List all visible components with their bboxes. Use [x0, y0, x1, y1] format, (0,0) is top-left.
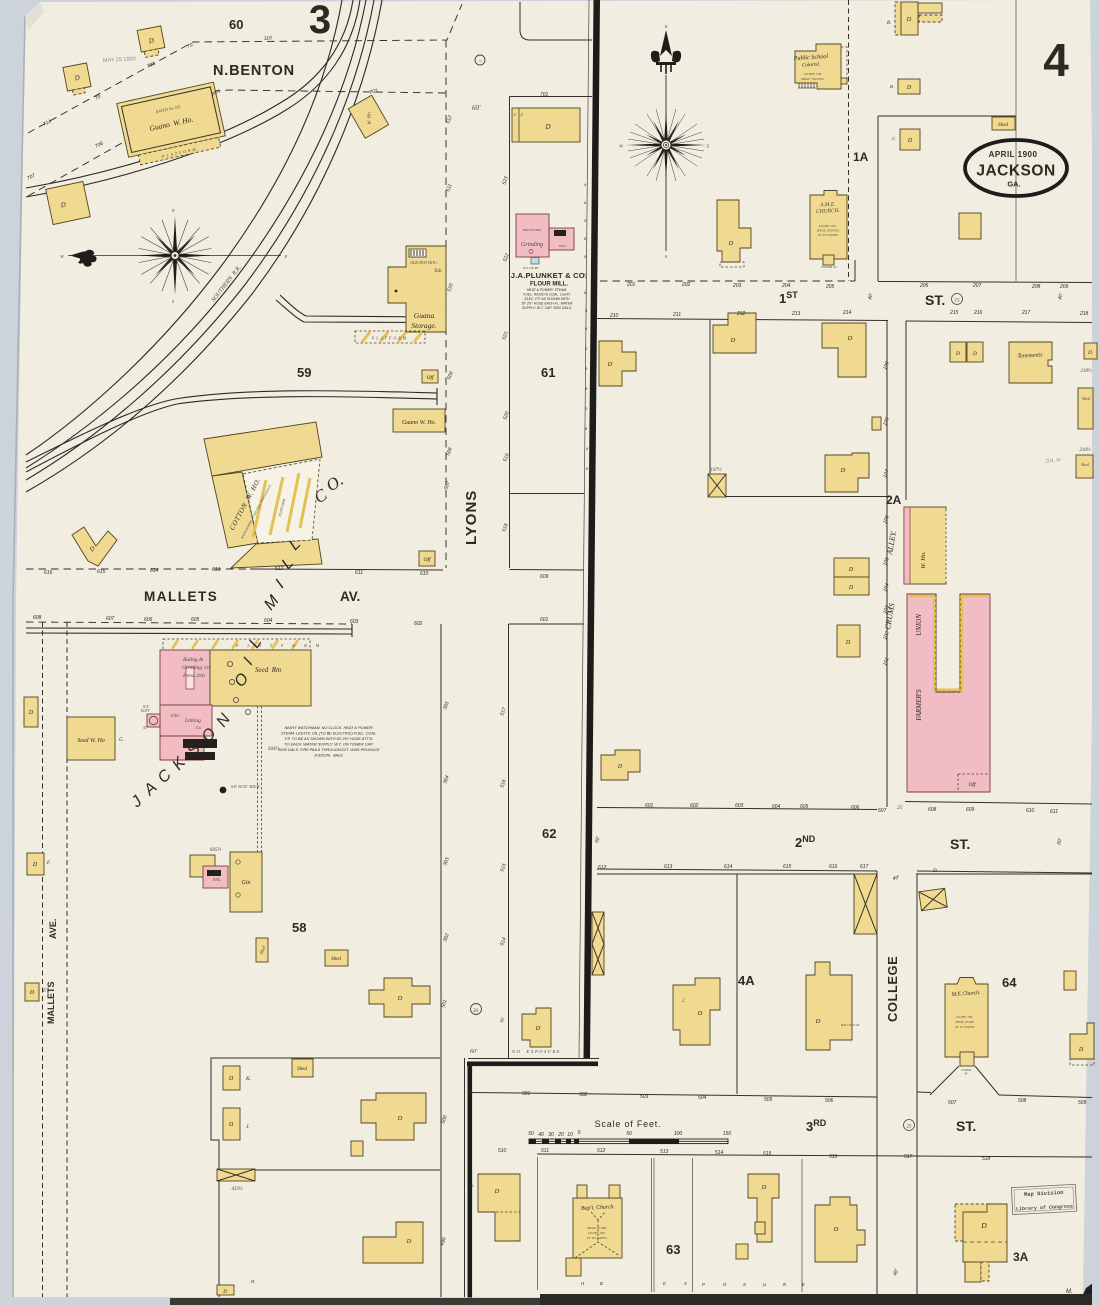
svg-text:210½: 210½: [1079, 448, 1091, 453]
svg-text:ELEV.: ELEV.: [140, 709, 150, 713]
svg-text:E: E: [802, 1282, 805, 1287]
svg-text:D: D: [847, 335, 853, 342]
svg-text:H.: H.: [250, 1279, 255, 1284]
svg-text:D: D: [29, 990, 35, 996]
svg-text:ST.: ST.: [956, 1118, 976, 1134]
svg-text:D: D: [955, 351, 960, 357]
svg-text:R: R: [783, 1282, 786, 1287]
svg-text:611: 611: [355, 570, 363, 576]
svg-text:PLATFORM: PLATFORM: [371, 336, 408, 341]
svg-text:N.BENTON: N.BENTON: [213, 63, 295, 79]
svg-text:HEAT: FURN.: HEAT: FURN.: [954, 1020, 974, 1024]
svg-text:BALCONY 2K: BALCONY 2K: [841, 1023, 860, 1027]
svg-text:S.P. 50'25" HIGH.: S.P. 50'25" HIGH.: [231, 784, 261, 789]
svg-text:R.: R.: [886, 21, 891, 26]
svg-text:D: D: [406, 1238, 412, 1245]
svg-text:Guano W. Ho.: Guano W. Ho.: [402, 420, 436, 426]
svg-text:Shed: Shed: [297, 1067, 307, 1072]
svg-text:516: 516: [829, 1154, 838, 1160]
svg-text:609: 609: [540, 574, 549, 580]
svg-text:605: 605: [800, 804, 809, 810]
svg-text:ENG.: ENG.: [212, 878, 221, 882]
svg-text:16' TO EAVES.: 16' TO EAVES.: [587, 1236, 608, 1240]
svg-text:Co: Co: [196, 725, 202, 730]
svg-text:60': 60': [472, 104, 481, 112]
svg-text:HEAT: STOVES: HEAT: STOVES: [816, 229, 839, 233]
svg-text:606: 606: [851, 805, 860, 811]
svg-text:608: 608: [928, 807, 937, 813]
svg-text:D: D: [848, 585, 854, 591]
svg-text:203: 203: [732, 283, 742, 289]
svg-text:D: D: [980, 1221, 987, 1230]
svg-text:10: 10: [567, 1132, 573, 1138]
svg-text:202: 202: [681, 282, 691, 288]
svg-text:Guana: Guana: [414, 311, 435, 320]
svg-text:62: 62: [542, 826, 556, 841]
svg-text:D: D: [815, 1018, 821, 1025]
svg-text:512: 512: [597, 1148, 606, 1154]
svg-text:616: 616: [829, 864, 838, 870]
svg-text:1A: 1A: [853, 150, 869, 164]
svg-text:D: D: [845, 640, 851, 646]
svg-text:D: D: [617, 764, 623, 770]
svg-text:43': 43': [143, 726, 148, 730]
svg-text:FLOUR MILL.: FLOUR MILL.: [530, 282, 568, 288]
svg-text:100: 100: [674, 1131, 683, 1137]
svg-text:K.: K.: [245, 1076, 251, 1082]
svg-text:50: 50: [528, 1131, 534, 1137]
svg-text:605½: 605½: [210, 848, 222, 853]
svg-text:612: 612: [598, 865, 607, 871]
svg-text:601: 601: [645, 803, 654, 809]
svg-text:201: 201: [626, 282, 636, 288]
svg-text:J.A.PLUNKET & CO.: J.A.PLUNKET & CO.: [511, 271, 587, 280]
svg-text:OLD HOT HOU.: OLD HOT HOU.: [410, 260, 438, 265]
svg-text:Shed: Shed: [998, 123, 1008, 128]
svg-text:ENG.: ENG.: [558, 244, 567, 248]
svg-text:508: 508: [1018, 1098, 1027, 1104]
svg-text:218: 218: [1079, 311, 1089, 317]
svg-text:B: B: [600, 1281, 603, 1286]
svg-text:IRON PLANK: IRON PLANK: [522, 228, 542, 232]
svg-text:50' 2½" HOSE EACH FL. WATER: 50' 2½" HOSE EACH FL. WATER: [522, 302, 573, 306]
svg-text:TO EACH. WATER SUPPLY: W.T. ON: TO EACH. WATER SUPPLY: W.T. ON TOWER CAP…: [284, 743, 373, 747]
svg-text:607: 607: [878, 808, 887, 814]
svg-text:LIGHT: OIL.: LIGHT: OIL.: [955, 1015, 974, 1019]
svg-text:507: 507: [948, 1100, 957, 1106]
svg-text:6000 GALS. FIRE PAILS THROUGHO: 6000 GALS. FIRE PAILS THROUGHOUT. GINS P…: [278, 748, 380, 752]
svg-text:0: 0: [578, 1130, 581, 1136]
svg-text:X: X: [683, 1281, 687, 1286]
svg-text:60': 60': [470, 1049, 478, 1055]
svg-text:503: 503: [640, 1094, 649, 1100]
svg-text:608: 608: [33, 615, 42, 621]
svg-text:D: D: [544, 123, 550, 131]
svg-text:G.: G.: [119, 738, 124, 743]
svg-text:518: 518: [982, 1156, 991, 1162]
svg-text:505: 505: [764, 1097, 773, 1103]
svg-text:FUEL: WOOD & COAL. LIGHT:: FUEL: WOOD & COAL. LIGHT:: [523, 293, 571, 297]
svg-text:30: 30: [473, 1009, 479, 1014]
svg-text:20: 20: [557, 1132, 564, 1138]
svg-text:20' TO EAVES.: 20' TO EAVES.: [955, 1025, 975, 1029]
svg-text:612: 612: [275, 566, 284, 572]
svg-text:215: 215: [949, 310, 959, 316]
svg-text:617: 617: [860, 864, 869, 870]
svg-text:510: 510: [498, 1148, 507, 1154]
svg-text:40: 40: [538, 1132, 544, 1138]
svg-text:216: 216: [973, 310, 983, 316]
svg-text:MALLETS: MALLETS: [46, 982, 56, 1025]
svg-text:3A: 3A: [1013, 1250, 1029, 1264]
svg-text:615: 615: [783, 864, 792, 870]
svg-text:64: 64: [1002, 975, 1017, 990]
svg-text:SUPPLY: W.T. CAP: 3000 GALS.: SUPPLY: W.T. CAP: 3000 GALS.: [522, 306, 572, 310]
svg-text:212: 212: [736, 311, 746, 317]
svg-text:Linting: Linting: [184, 718, 201, 724]
svg-text:40': 40': [964, 1072, 968, 1076]
svg-text:701: 701: [540, 92, 549, 98]
svg-text:150: 150: [723, 1131, 732, 1137]
svg-text:208: 208: [1031, 284, 1041, 290]
svg-text:C.: C.: [892, 136, 896, 141]
svg-text:P: P: [702, 1282, 705, 1287]
svg-text:D: D: [32, 862, 38, 868]
svg-text:602: 602: [690, 803, 699, 809]
svg-text:Tab.: Tab.: [434, 269, 443, 274]
svg-text:D: D: [833, 1226, 839, 1233]
svg-text:605: 605: [191, 617, 200, 623]
svg-text:506: 506: [825, 1098, 834, 1104]
svg-text:E: E: [706, 144, 710, 149]
svg-text:110: 110: [264, 35, 273, 42]
svg-text:ST.: ST.: [950, 836, 970, 852]
svg-text:509: 509: [1078, 1100, 1087, 1106]
svg-text:614: 614: [150, 568, 159, 574]
svg-text:D: D: [494, 1188, 500, 1195]
svg-text:W.T. ON RF.: W.T. ON RF.: [523, 266, 539, 270]
svg-text:504: 504: [698, 1095, 707, 1101]
svg-text:25: 25: [907, 1125, 913, 1130]
svg-text:UNION: UNION: [915, 614, 923, 636]
svg-text:59: 59: [297, 365, 311, 380]
svg-text:Shed: Shed: [1082, 396, 1091, 401]
svg-text:ST.: ST.: [925, 292, 945, 308]
svg-text:610: 610: [1026, 808, 1035, 814]
svg-text:D: D: [907, 138, 913, 144]
svg-text:513: 513: [660, 1149, 669, 1155]
svg-text:W. Ho.: W. Ho.: [920, 551, 927, 569]
svg-text:GA.: GA.: [1007, 180, 1020, 189]
svg-text:218½: 218½: [1080, 369, 1092, 374]
svg-text:S: S: [743, 1282, 746, 1287]
svg-text:63: 63: [666, 1242, 680, 1257]
svg-text:603: 603: [735, 803, 744, 809]
svg-text:Shed: Shed: [331, 957, 341, 962]
svg-text:601: 601: [540, 617, 549, 623]
svg-text:614: 614: [724, 864, 733, 870]
svg-text:TOWER 16': TOWER 16': [821, 265, 837, 269]
svg-text:217: 217: [1021, 310, 1031, 316]
svg-text:HEAT: STOVES.: HEAT: STOVES.: [800, 77, 825, 81]
svg-text:606: 606: [144, 617, 153, 623]
svg-text:Seed Rm: Seed Rm: [255, 666, 281, 674]
svg-text:616: 616: [44, 570, 53, 576]
svg-text:502: 502: [579, 1092, 588, 1098]
svg-text:Storage.: Storage.: [411, 321, 436, 330]
svg-text:207: 207: [972, 283, 982, 289]
svg-text:514: 514: [715, 1150, 724, 1156]
svg-text:204: 204: [781, 283, 791, 289]
svg-text:602: 602: [414, 621, 423, 627]
svg-text:30: 30: [548, 1132, 554, 1138]
svg-text:61: 61: [541, 365, 555, 380]
svg-text:501: 501: [522, 1091, 531, 1097]
svg-text:613: 613: [664, 864, 673, 870]
svg-text:50: 50: [626, 1131, 632, 1137]
svg-text:LIGHT: OIL: LIGHT: OIL: [803, 72, 822, 76]
svg-text:D: D: [848, 567, 854, 573]
svg-text:CHURCH.: CHURCH.: [816, 208, 840, 215]
svg-text:AV.: AV.: [340, 589, 360, 604]
svg-text:213: 213: [791, 311, 801, 317]
svg-text:HEAT & POWER: STEAM.: HEAT & POWER: STEAM.: [527, 288, 567, 292]
svg-text:Scale of Feet.: Scale of Feet.: [595, 1119, 662, 1129]
svg-text:MALLETS: MALLETS: [144, 589, 218, 604]
svg-text:M.: M.: [1066, 1289, 1073, 1295]
svg-text:F.: F.: [46, 861, 51, 866]
svg-text:511: 511: [541, 1148, 549, 1154]
svg-text:JACKSON: JACKSON: [976, 163, 1055, 180]
svg-text:D: D: [728, 240, 734, 247]
svg-text:211: 211: [672, 312, 681, 318]
svg-text:D: D: [1078, 1047, 1084, 1053]
svg-text:D: D: [397, 1115, 403, 1122]
svg-text:COLLEGE: COLLEGE: [885, 956, 900, 1022]
svg-text:E: E: [284, 254, 288, 259]
svg-text:Baling &: Baling &: [183, 657, 204, 663]
svg-text:Colored.: Colored.: [802, 61, 820, 68]
svg-text:APRIL 1900: APRIL 1900: [989, 150, 1038, 159]
svg-text:J.: J.: [246, 1124, 250, 1130]
svg-text:2A: 2A: [886, 493, 902, 507]
svg-text:NO EXPOSURE.: NO EXPOSURE.: [511, 1049, 564, 1054]
svg-text:107½: 107½: [710, 468, 722, 473]
svg-text:60: 60: [229, 17, 243, 32]
svg-text:D: D: [1087, 350, 1092, 356]
svg-text:LIGHT: OIL.: LIGHT: OIL.: [818, 224, 837, 228]
svg-text:LYONS: LYONS: [463, 490, 480, 545]
svg-text:210: 210: [609, 313, 619, 319]
svg-text:D: D: [228, 1076, 234, 1082]
svg-text:16' TO EAVES.: 16' TO EAVES.: [818, 233, 839, 237]
svg-text:B.: B.: [890, 84, 894, 89]
svg-text:204, W: 204, W: [1045, 456, 1061, 464]
svg-text:Shed: Shed: [1081, 462, 1090, 467]
svg-text:ENG.: ENG.: [170, 713, 180, 718]
svg-text:611: 611: [1050, 809, 1058, 815]
svg-text:D: D: [972, 351, 977, 357]
svg-text:604½: 604½: [268, 747, 280, 752]
svg-text:Seed W. Ho: Seed W. Ho: [77, 738, 105, 744]
svg-text:603: 603: [350, 619, 359, 625]
svg-text:58: 58: [292, 920, 306, 935]
svg-text:W. Ho.: W. Ho.: [367, 111, 372, 125]
svg-text:517: 517: [904, 1154, 913, 1160]
svg-text:D: D: [397, 995, 403, 1002]
svg-text:D.: D.: [932, 869, 938, 874]
svg-text:609: 609: [966, 807, 975, 813]
svg-text:D: D: [228, 1122, 234, 1128]
svg-text:D: D: [906, 85, 912, 91]
svg-text:D: D: [607, 361, 613, 368]
svg-text:F.P. TO BE AS SHOWN WITH 50' 2: F.P. TO BE AS SHOWN WITH 50' 2½" HOSE AT…: [285, 737, 374, 741]
svg-text:D: D: [697, 1010, 703, 1017]
svg-text:JUDICIAL BALE.: JUDICIAL BALE.: [313, 754, 344, 758]
svg-text:4A: 4A: [738, 973, 755, 988]
svg-text:LIGHT: OIL.: LIGHT: OIL.: [587, 1231, 606, 1235]
svg-text:STEAM. LIGHTS: OIL (TO BE ELEC: STEAM. LIGHTS: OIL (TO BE ELECTRIC) FUEL…: [281, 732, 377, 736]
svg-text:615: 615: [97, 569, 106, 575]
svg-text:FARMER'S: FARMER'S: [915, 689, 923, 722]
svg-text:3: 3: [309, 0, 331, 42]
svg-text:D: D: [840, 467, 846, 474]
svg-text:214: 214: [842, 310, 852, 316]
svg-text:D: D: [730, 337, 736, 344]
svg-text:D: D: [28, 710, 34, 716]
svg-text:206: 206: [919, 283, 929, 289]
svg-text:HEAT: FURN.: HEAT: FURN.: [586, 1226, 607, 1230]
svg-text:515: 515: [763, 1151, 772, 1157]
svg-text:610: 610: [420, 571, 429, 577]
svg-text:AVE.: AVE.: [48, 919, 58, 939]
svg-text:205: 205: [825, 284, 835, 290]
svg-text:607: 607: [106, 616, 115, 622]
svg-text:433½: 433½: [231, 1187, 243, 1192]
svg-text:D: D: [222, 1290, 227, 1295]
svg-text:NIGHT WATCHMAN. NO CLOCK. HEAT: NIGHT WATCHMAN. NO CLOCK. HEAT & POWER:: [285, 726, 374, 730]
svg-text:15: 15: [955, 299, 961, 304]
svg-text:D: D: [535, 1025, 541, 1032]
svg-text:25': 25': [897, 806, 904, 811]
svg-text:613: 613: [212, 567, 221, 573]
svg-text:604: 604: [772, 804, 781, 810]
svg-text:D: D: [761, 1184, 767, 1191]
svg-text:209: 209: [1059, 284, 1069, 290]
svg-text:Grinding: Grinding: [521, 242, 543, 248]
svg-text:ELEC. F.P. AS SHOWN WITH: ELEC. F.P. AS SHOWN WITH: [525, 297, 571, 301]
svg-text:Gin: Gin: [242, 880, 251, 886]
svg-text:E: E: [663, 1281, 666, 1286]
svg-text:4: 4: [1043, 34, 1069, 86]
svg-text:604: 604: [264, 618, 273, 624]
svg-text:D: D: [906, 16, 912, 23]
